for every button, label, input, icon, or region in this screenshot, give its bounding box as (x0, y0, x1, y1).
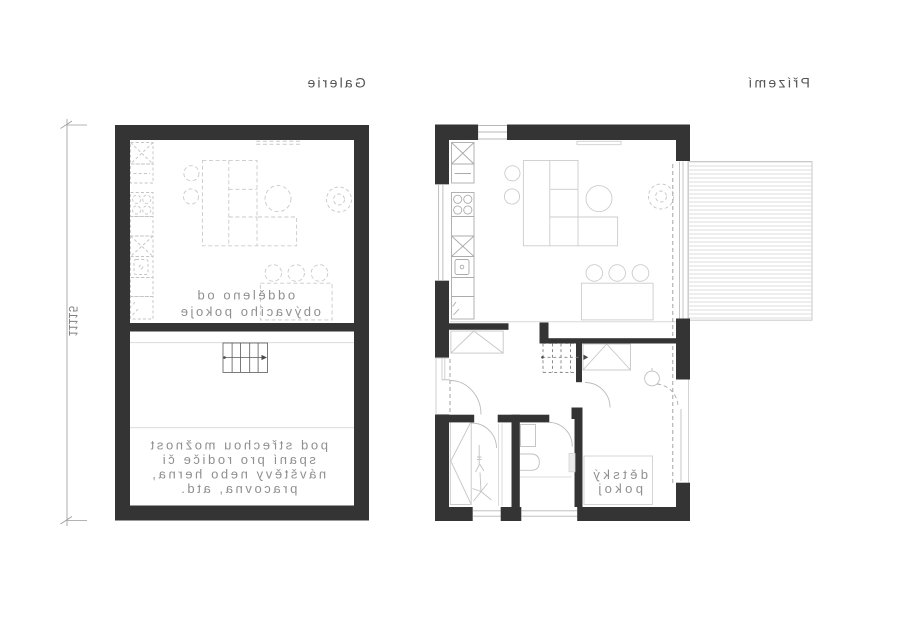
svg-text:11115: 11115 (66, 306, 78, 337)
svg-text:pracovna, atd.: pracovna, atd. (179, 481, 298, 496)
svg-text:spaní pro rodiče či: spaní pro rodiče či (160, 452, 316, 467)
svg-text:návštěvy nebo herna,: návštěvy nebo herna, (150, 467, 326, 482)
svg-text:pod střechou možnost: pod střechou možnost (148, 438, 328, 453)
svg-text:obývacího pokoje: obývacího pokoje (178, 304, 321, 319)
svg-text:dětský: dětský (590, 467, 648, 482)
svg-text:Galerie: Galerie (305, 75, 366, 91)
svg-text:odděleno od: odděleno od (195, 288, 295, 303)
svg-text:pokoj: pokoj (595, 481, 643, 496)
svg-text:Přízemí: Přízemí (746, 75, 810, 91)
